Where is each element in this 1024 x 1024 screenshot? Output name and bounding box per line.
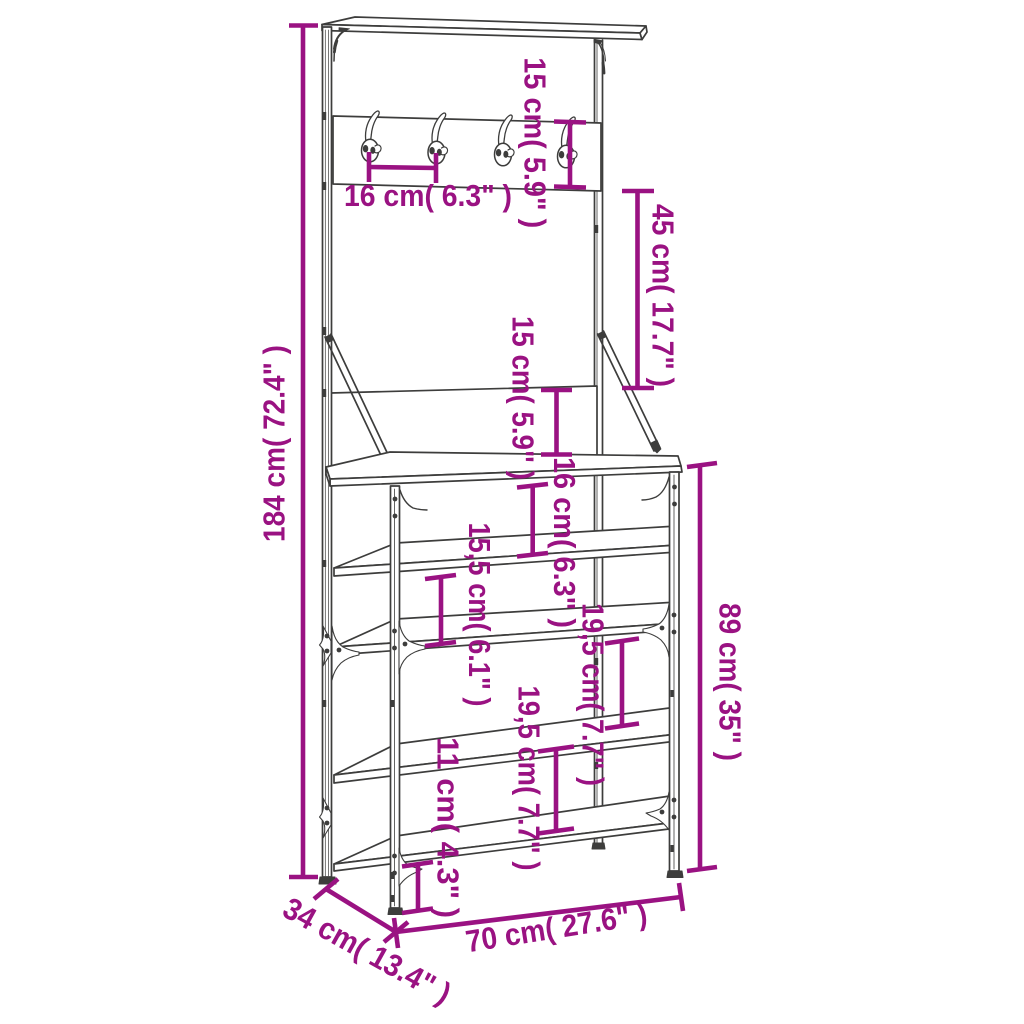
svg-text:16 cm( 6.3" ): 16 cm( 6.3" )	[344, 178, 512, 213]
svg-text:19,5 cm( 7.7" ): 19,5 cm( 7.7" )	[576, 603, 611, 786]
svg-text:15 cm( 5.9" ): 15 cm( 5.9" )	[506, 316, 541, 480]
svg-text:184 cm( 72.4" ): 184 cm( 72.4" )	[257, 345, 292, 542]
svg-text:11 cm( 4.3" ): 11 cm( 4.3" )	[431, 737, 466, 918]
svg-text:15,5 cm( 6.1" ): 15,5 cm( 6.1" )	[462, 523, 497, 707]
svg-text:45 cm( 17.7" ): 45 cm( 17.7" )	[646, 204, 681, 387]
svg-text:89 cm( 35" ): 89 cm( 35" )	[713, 603, 748, 761]
svg-text:15 cm( 5.9" ): 15 cm( 5.9" )	[518, 57, 553, 228]
svg-text:19,5 cm( 7.7" ): 19,5 cm( 7.7" )	[512, 686, 547, 871]
